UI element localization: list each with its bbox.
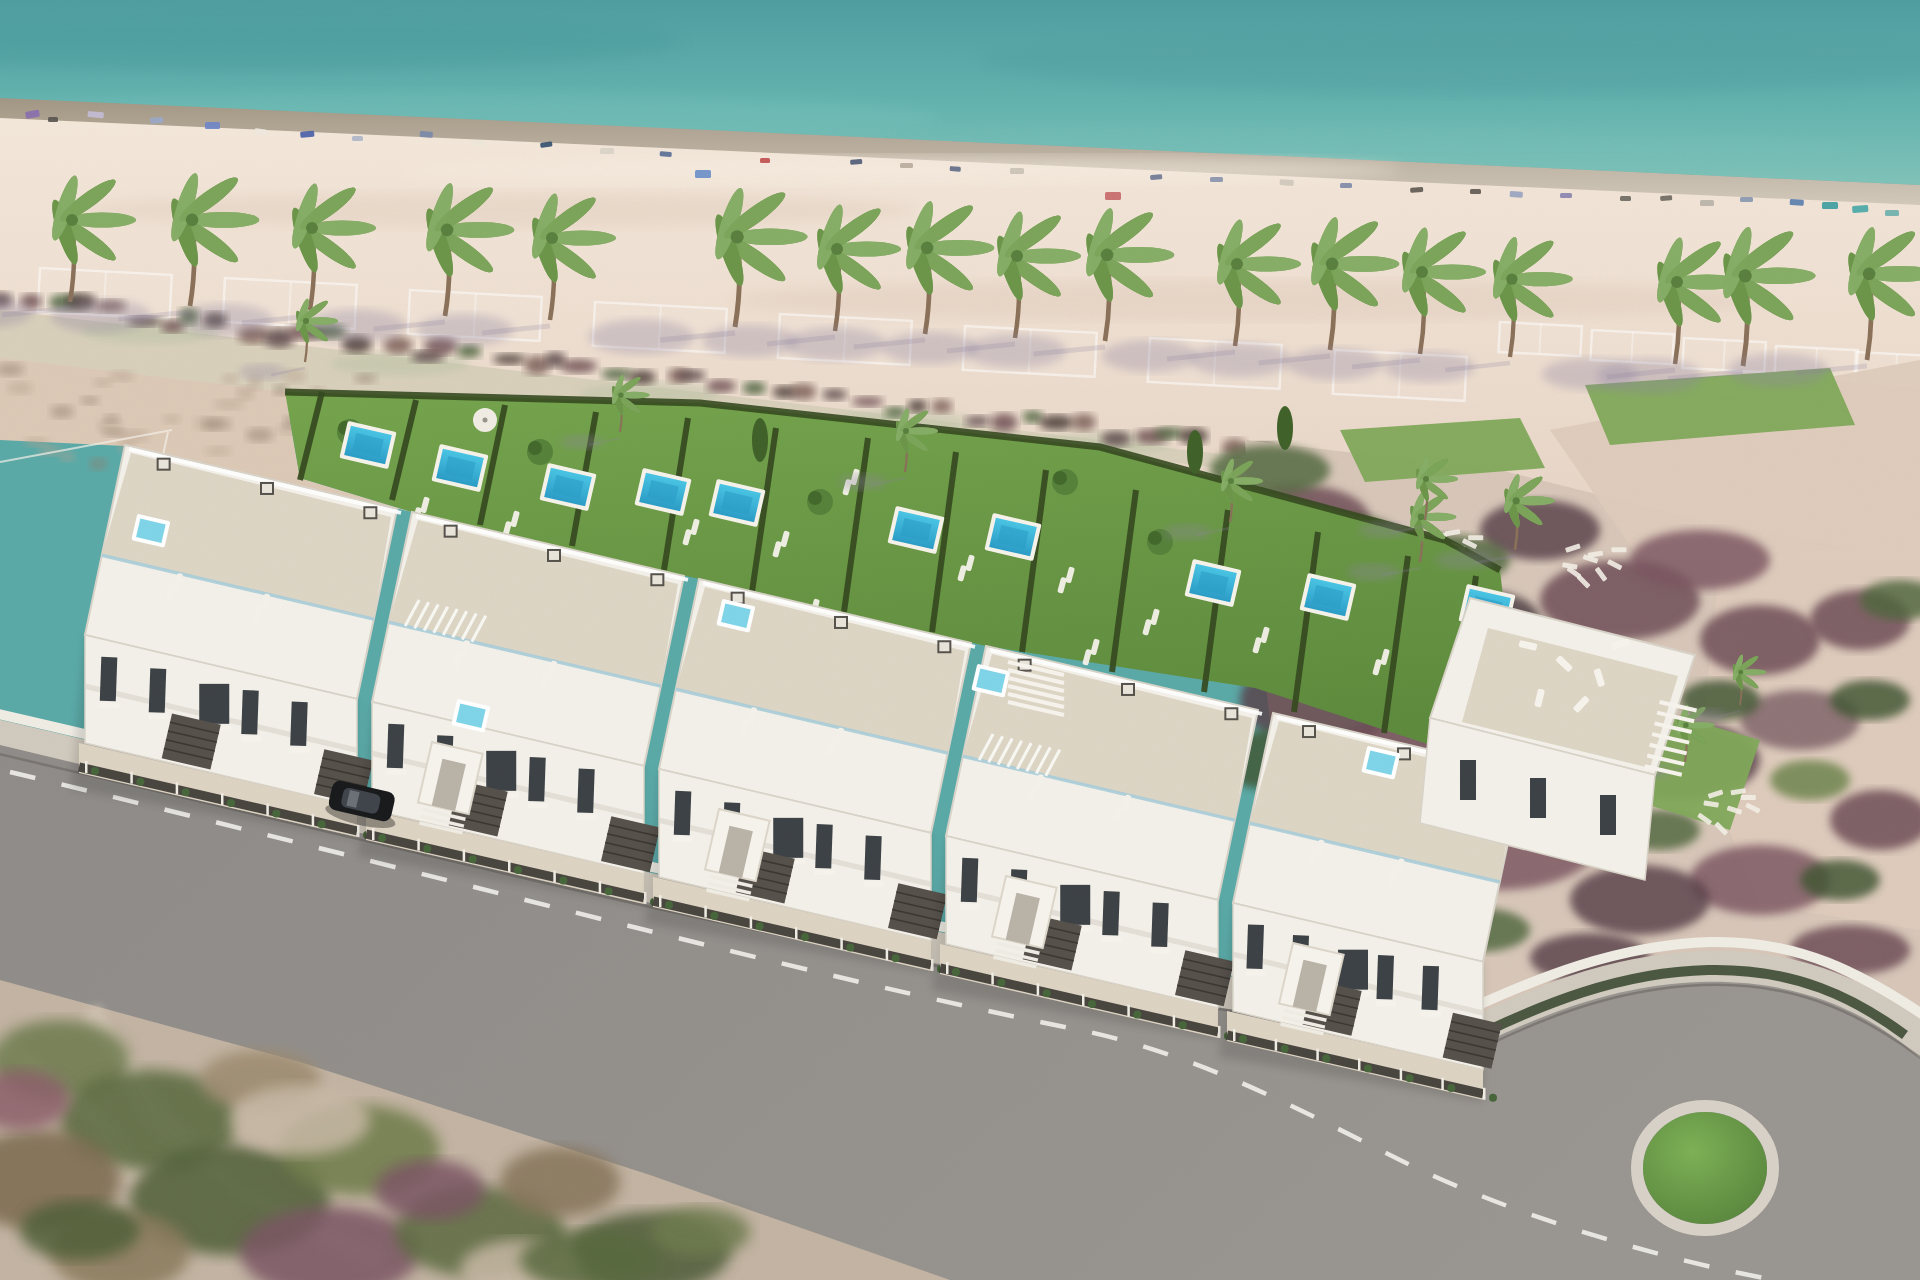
beachfront-aerial-render (0, 0, 1920, 1280)
scene-canvas (0, 0, 1920, 1280)
film-grain-overlay (0, 0, 1920, 1280)
